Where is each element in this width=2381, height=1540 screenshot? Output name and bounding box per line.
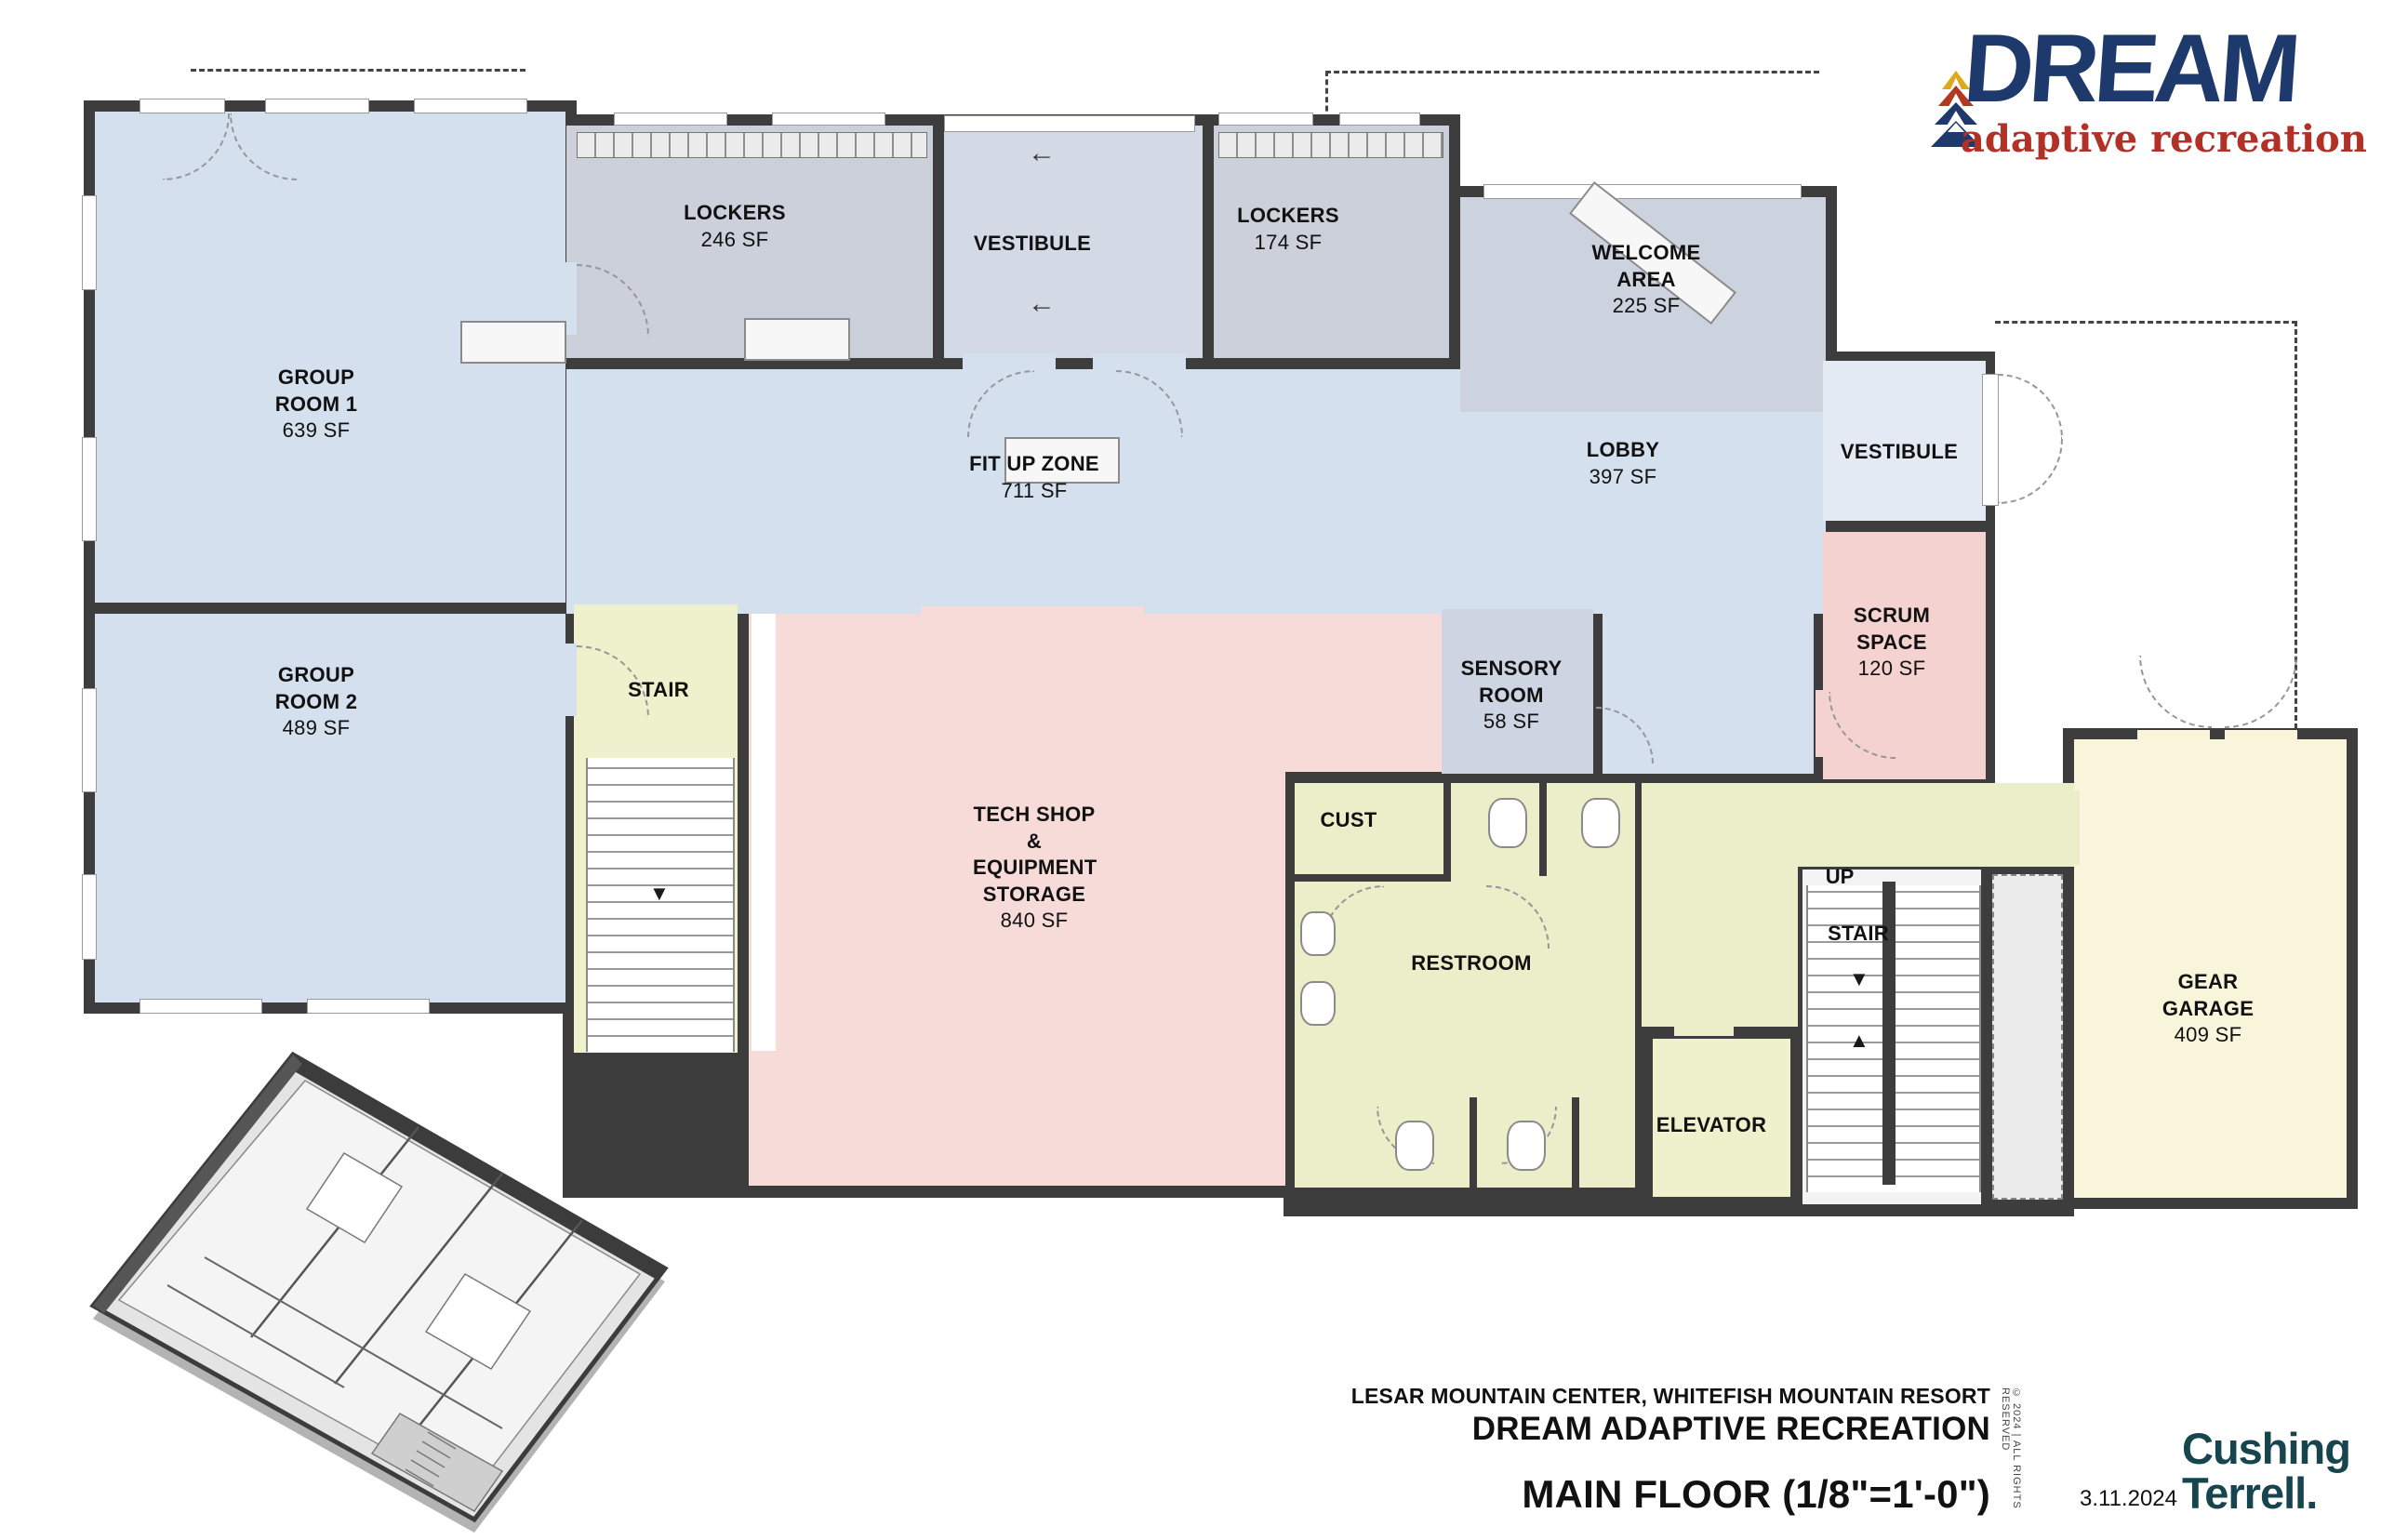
lockers-row — [1218, 132, 1443, 158]
room-label-stair-left: STAIR — [593, 677, 724, 704]
vestibule-right-entry-door — [1982, 374, 1999, 506]
room-name: RESTROOM — [1378, 950, 1564, 977]
room-label-group-room-2: GROUP ROOM 2 489 SF — [246, 662, 386, 742]
window — [140, 99, 225, 113]
window — [614, 113, 727, 126]
window — [265, 99, 369, 113]
copyright-text: © 2024 | ALL RIGHTS RESERVED — [2000, 1387, 2022, 1540]
room-label-scrum-space: SCRUM SPACE 120 SF — [1841, 603, 1943, 683]
stair-left-treads — [586, 758, 735, 1052]
door-opening — [963, 353, 1056, 372]
toilet — [1581, 798, 1620, 848]
room-name: SCRUM SPACE — [1841, 603, 1943, 656]
stall-partition — [1572, 1097, 1579, 1188]
stall-partition — [1470, 1097, 1477, 1188]
room-name: LOBBY — [1549, 437, 1697, 464]
client-name: DREAM ADAPTIVE RECREATION — [1153, 1411, 1990, 1448]
gear-garage-door — [2225, 730, 2297, 743]
toilet — [1507, 1121, 1546, 1171]
window — [82, 437, 97, 541]
door-opening — [558, 644, 577, 716]
room-label-lockers-246: LOCKERS 246 SF — [651, 200, 818, 253]
door-opening — [2065, 790, 2080, 865]
canopy-dashed-line-left — [191, 69, 525, 100]
table — [744, 318, 850, 361]
room-name: STAIR — [593, 677, 724, 704]
room-label-welcome-area: WELCOME AREA 225 SF — [1576, 240, 1716, 320]
room-area: 225 SF — [1576, 293, 1716, 320]
down-arrow-icon: ▼ — [649, 883, 670, 904]
room-name: STAIR — [1802, 921, 1914, 948]
room-name: TECH SHOP & EQUIPMENT STORAGE — [973, 802, 1096, 908]
room-label-group-room-1: GROUP ROOM 1 639 SF — [246, 365, 386, 445]
window — [82, 688, 97, 792]
room-label-vestibule-right: VESTIBULE — [1820, 439, 1978, 466]
toilet — [1488, 798, 1527, 848]
room-label-restroom: RESTROOM — [1378, 950, 1564, 977]
window — [140, 999, 262, 1014]
room-name: WELCOME AREA — [1576, 240, 1716, 293]
door-opening — [1816, 690, 1829, 757]
room-area: 711 SF — [932, 478, 1137, 505]
window — [82, 874, 97, 960]
room-name: VESTIBULE — [1820, 439, 1978, 466]
room-name: GROUP ROOM 1 — [246, 365, 386, 418]
room-label-vestibule-top: VESTIBULE — [949, 231, 1116, 258]
overhead-door-opening — [921, 606, 1144, 619]
firm-name-line2: Terrell. — [2182, 1471, 2350, 1516]
elevator-door — [1674, 1023, 1734, 1036]
door-opening — [1093, 353, 1186, 372]
down-arrow-icon: ▼ — [1849, 969, 1869, 989]
sheet-title: MAIN FLOOR (1/8"=1'-0") — [1153, 1472, 1990, 1517]
room-label-stair-right: STAIR — [1802, 921, 1914, 948]
entry-arrow-icon: ← — [1028, 290, 1056, 318]
axon-key-plan — [65, 1042, 679, 1534]
window — [1218, 113, 1313, 126]
room-label-gear-garage: GEAR GARAGE 409 SF — [2148, 969, 2268, 1049]
gear-garage-door — [2137, 730, 2210, 743]
logo-brand: DREAM — [1961, 20, 2299, 117]
window — [772, 113, 885, 126]
sheet-date: 3.11.2024 — [2080, 1486, 2177, 1512]
room-area: 397 SF — [1549, 464, 1697, 491]
room-area: 246 SF — [651, 227, 818, 254]
window — [307, 999, 430, 1014]
cushing-terrell-logo: Cushing Terrell. — [2182, 1427, 2350, 1516]
project-title: LESAR MOUNTAIN CENTER, WHITEFISH MOUNTAI… — [1153, 1384, 1990, 1409]
room-name: GROUP ROOM 2 — [246, 662, 386, 715]
sink — [1300, 911, 1336, 956]
window — [414, 99, 527, 113]
room-name: VESTIBULE — [949, 231, 1116, 258]
window — [1483, 184, 1802, 199]
room-area: 840 SF — [973, 908, 1096, 935]
room-name: SENSORY ROOM — [1451, 656, 1572, 709]
table — [460, 321, 566, 364]
vestibule-entry-door — [944, 115, 1195, 132]
room-area: 120 SF — [1841, 656, 1943, 683]
window — [82, 195, 97, 290]
room-name: ELEVATOR — [1642, 1112, 1781, 1139]
lockers-row — [577, 132, 927, 158]
shaft — [1992, 874, 2063, 1200]
room-label-elevator: ELEVATOR — [1642, 1112, 1781, 1139]
tech-shop-door-track — [752, 614, 776, 1051]
room-name: FIT UP ZONE — [932, 451, 1137, 478]
room-label-cust: CUST — [1293, 807, 1404, 834]
room-label-tech-shop: TECH SHOP & EQUIPMENT STORAGE 840 SF — [973, 802, 1096, 935]
corridor-east — [1642, 783, 2074, 867]
stall-partition — [1539, 783, 1547, 876]
room-area: 489 SF — [246, 715, 386, 742]
entry-arrow-icon: ← — [1028, 139, 1056, 167]
room-label-fit-up-zone: FIT UP ZONE 711 SF — [932, 451, 1137, 504]
room-area: 174 SF — [1204, 230, 1372, 257]
title-block: LESAR MOUNTAIN CENTER, WHITEFISH MOUNTAI… — [1153, 1384, 1990, 1517]
window — [1339, 113, 1420, 126]
room-area: 639 SF — [246, 418, 386, 445]
dream-logo: DREAM adaptive recreation — [1918, 24, 2370, 173]
room-label-lockers-174: LOCKERS 174 SF — [1204, 203, 1372, 256]
room-name: GEAR GARAGE — [2148, 969, 2268, 1022]
room-name: CUST — [1293, 807, 1404, 834]
axon-floor — [119, 1081, 640, 1495]
sink — [1300, 981, 1336, 1026]
firm-name-line1: Cushing — [2182, 1427, 2350, 1471]
room-area: 409 SF — [2148, 1022, 2268, 1049]
room-label-lobby: LOBBY 397 SF — [1549, 437, 1697, 490]
room-label-sensory-room: SENSORY ROOM 58 SF — [1451, 656, 1572, 736]
toilet — [1395, 1121, 1434, 1171]
corridor-elevator — [1642, 867, 1798, 1027]
stair-up-label: UP — [1826, 865, 1855, 889]
up-arrow-icon: ▲ — [1849, 1030, 1869, 1051]
room-name: LOCKERS — [651, 200, 818, 227]
room-name: LOCKERS — [1204, 203, 1372, 230]
logo-tagline: adaptive recreation — [1961, 117, 2367, 161]
drawing-sheet: ▼ ▼ ▲ ← ← GROUP ROOM 1 639 SF GROUP ROOM… — [0, 0, 2381, 1540]
room-area: 58 SF — [1451, 709, 1572, 736]
